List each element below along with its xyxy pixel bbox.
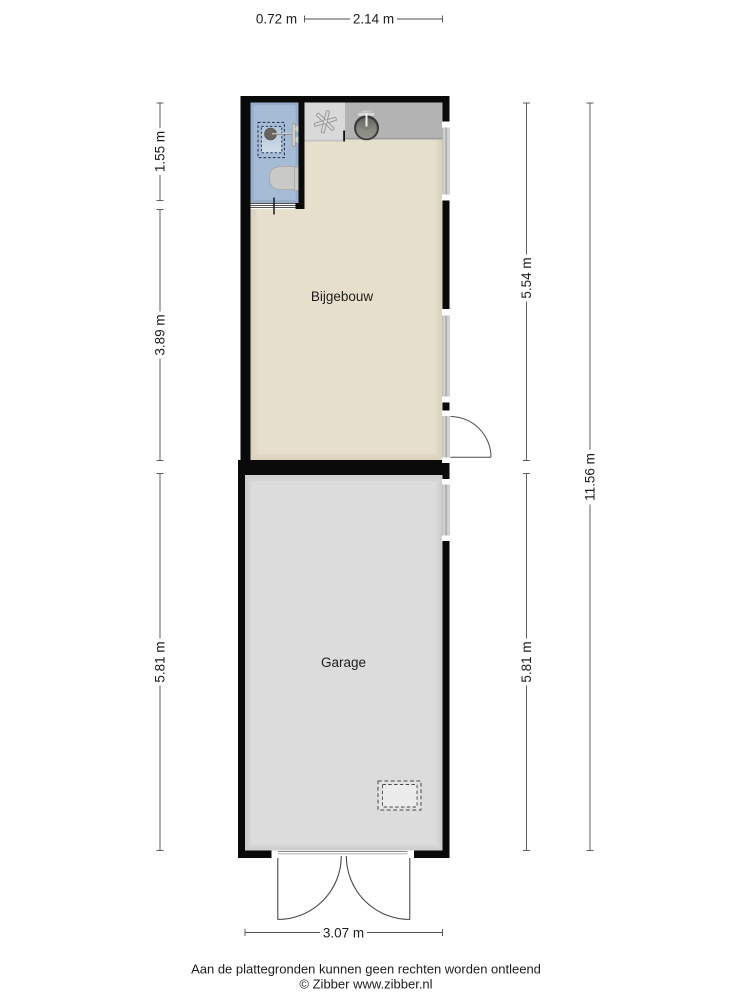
svg-text:11.56 m: 11.56 m — [583, 453, 598, 501]
svg-text:Garage: Garage — [321, 655, 366, 670]
svg-text:Aan de plattegronden kunnen ge: Aan de plattegronden kunnen geen rechten… — [191, 962, 541, 977]
svg-text:5.81 m: 5.81 m — [153, 641, 168, 682]
svg-text:3.89 m: 3.89 m — [153, 314, 168, 355]
svg-text:0.72 m: 0.72 m — [256, 12, 297, 27]
svg-text:Bijgebouw: Bijgebouw — [311, 289, 374, 304]
svg-text:© Zibber www.zibber.nl: © Zibber www.zibber.nl — [299, 977, 432, 992]
svg-text:1.55 m: 1.55 m — [153, 131, 168, 172]
svg-text:3.07 m: 3.07 m — [323, 926, 364, 941]
svg-text:5.54 m: 5.54 m — [519, 257, 534, 298]
svg-text:2.14 m: 2.14 m — [353, 12, 394, 27]
svg-text:5.81 m: 5.81 m — [519, 641, 534, 682]
